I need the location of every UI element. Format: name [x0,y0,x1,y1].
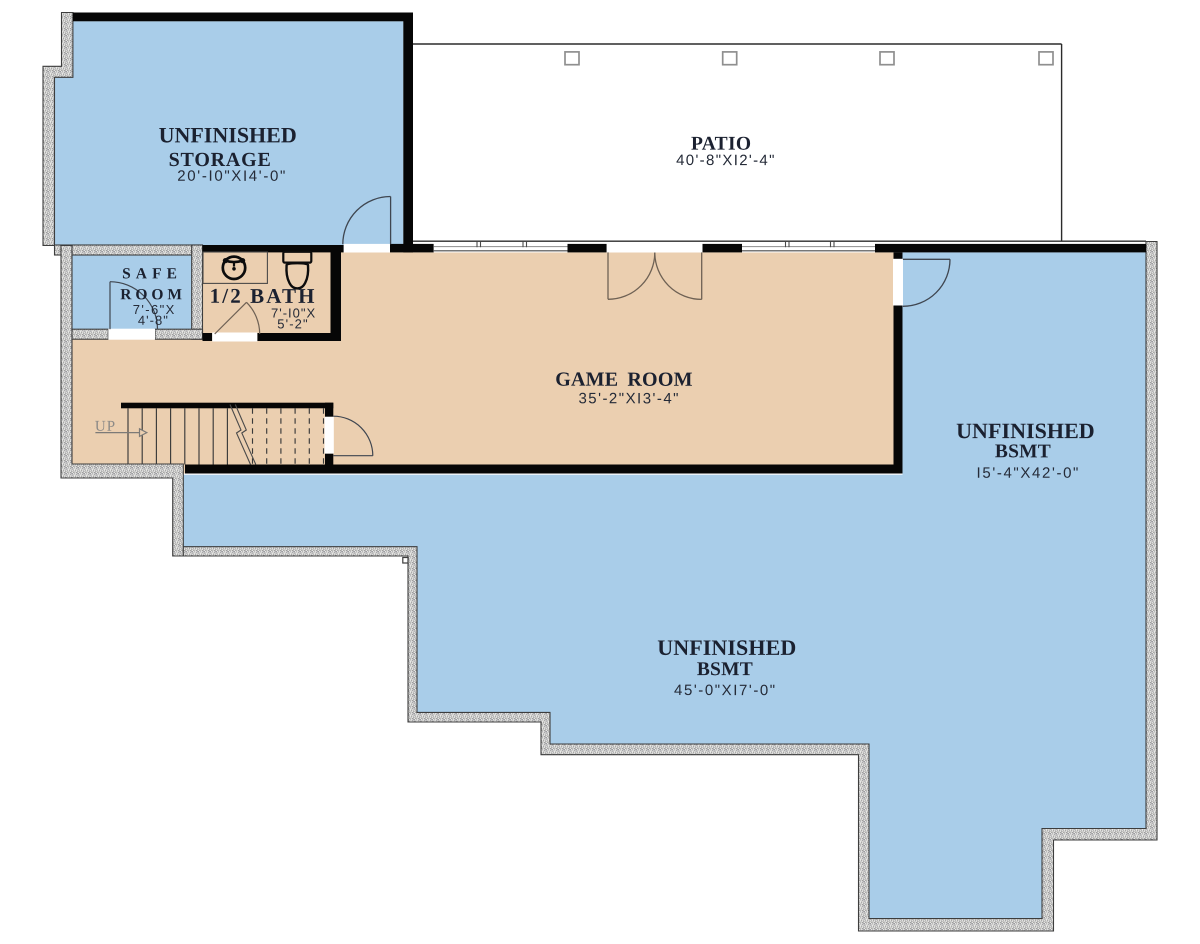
svg-text:20'-I0"XI4'-0": 20'-I0"XI4'-0" [177,168,287,185]
svg-text:GAME: GAME [555,369,618,391]
svg-text:1/2 BATH: 1/2 BATH [210,284,317,308]
svg-text:SAFE: SAFE [122,265,182,282]
svg-text:UNFINISHED: UNFINISHED [956,418,1095,443]
svg-text:I5'-4"X42'-0": I5'-4"X42'-0" [977,465,1080,482]
svg-text:5'-2": 5'-2" [277,316,308,331]
svg-text:UNFINISHED: UNFINISHED [657,635,796,660]
svg-text:4'-8": 4'-8" [138,313,169,328]
svg-text:ROOM: ROOM [120,286,186,303]
svg-text:UNFINISHED: UNFINISHED [159,122,297,147]
svg-text:35'-2"XI3'-4": 35'-2"XI3'-4" [578,390,680,407]
svg-text:ROOM: ROOM [627,369,692,391]
svg-text:45'-0"XI7'-0": 45'-0"XI7'-0" [674,682,777,699]
svg-text:40'-8"XI2'-4": 40'-8"XI2'-4" [676,152,776,169]
svg-text:UP: UP [95,419,116,435]
svg-text:BSMT: BSMT [995,441,1051,462]
svg-text:BSMT: BSMT [697,659,753,680]
